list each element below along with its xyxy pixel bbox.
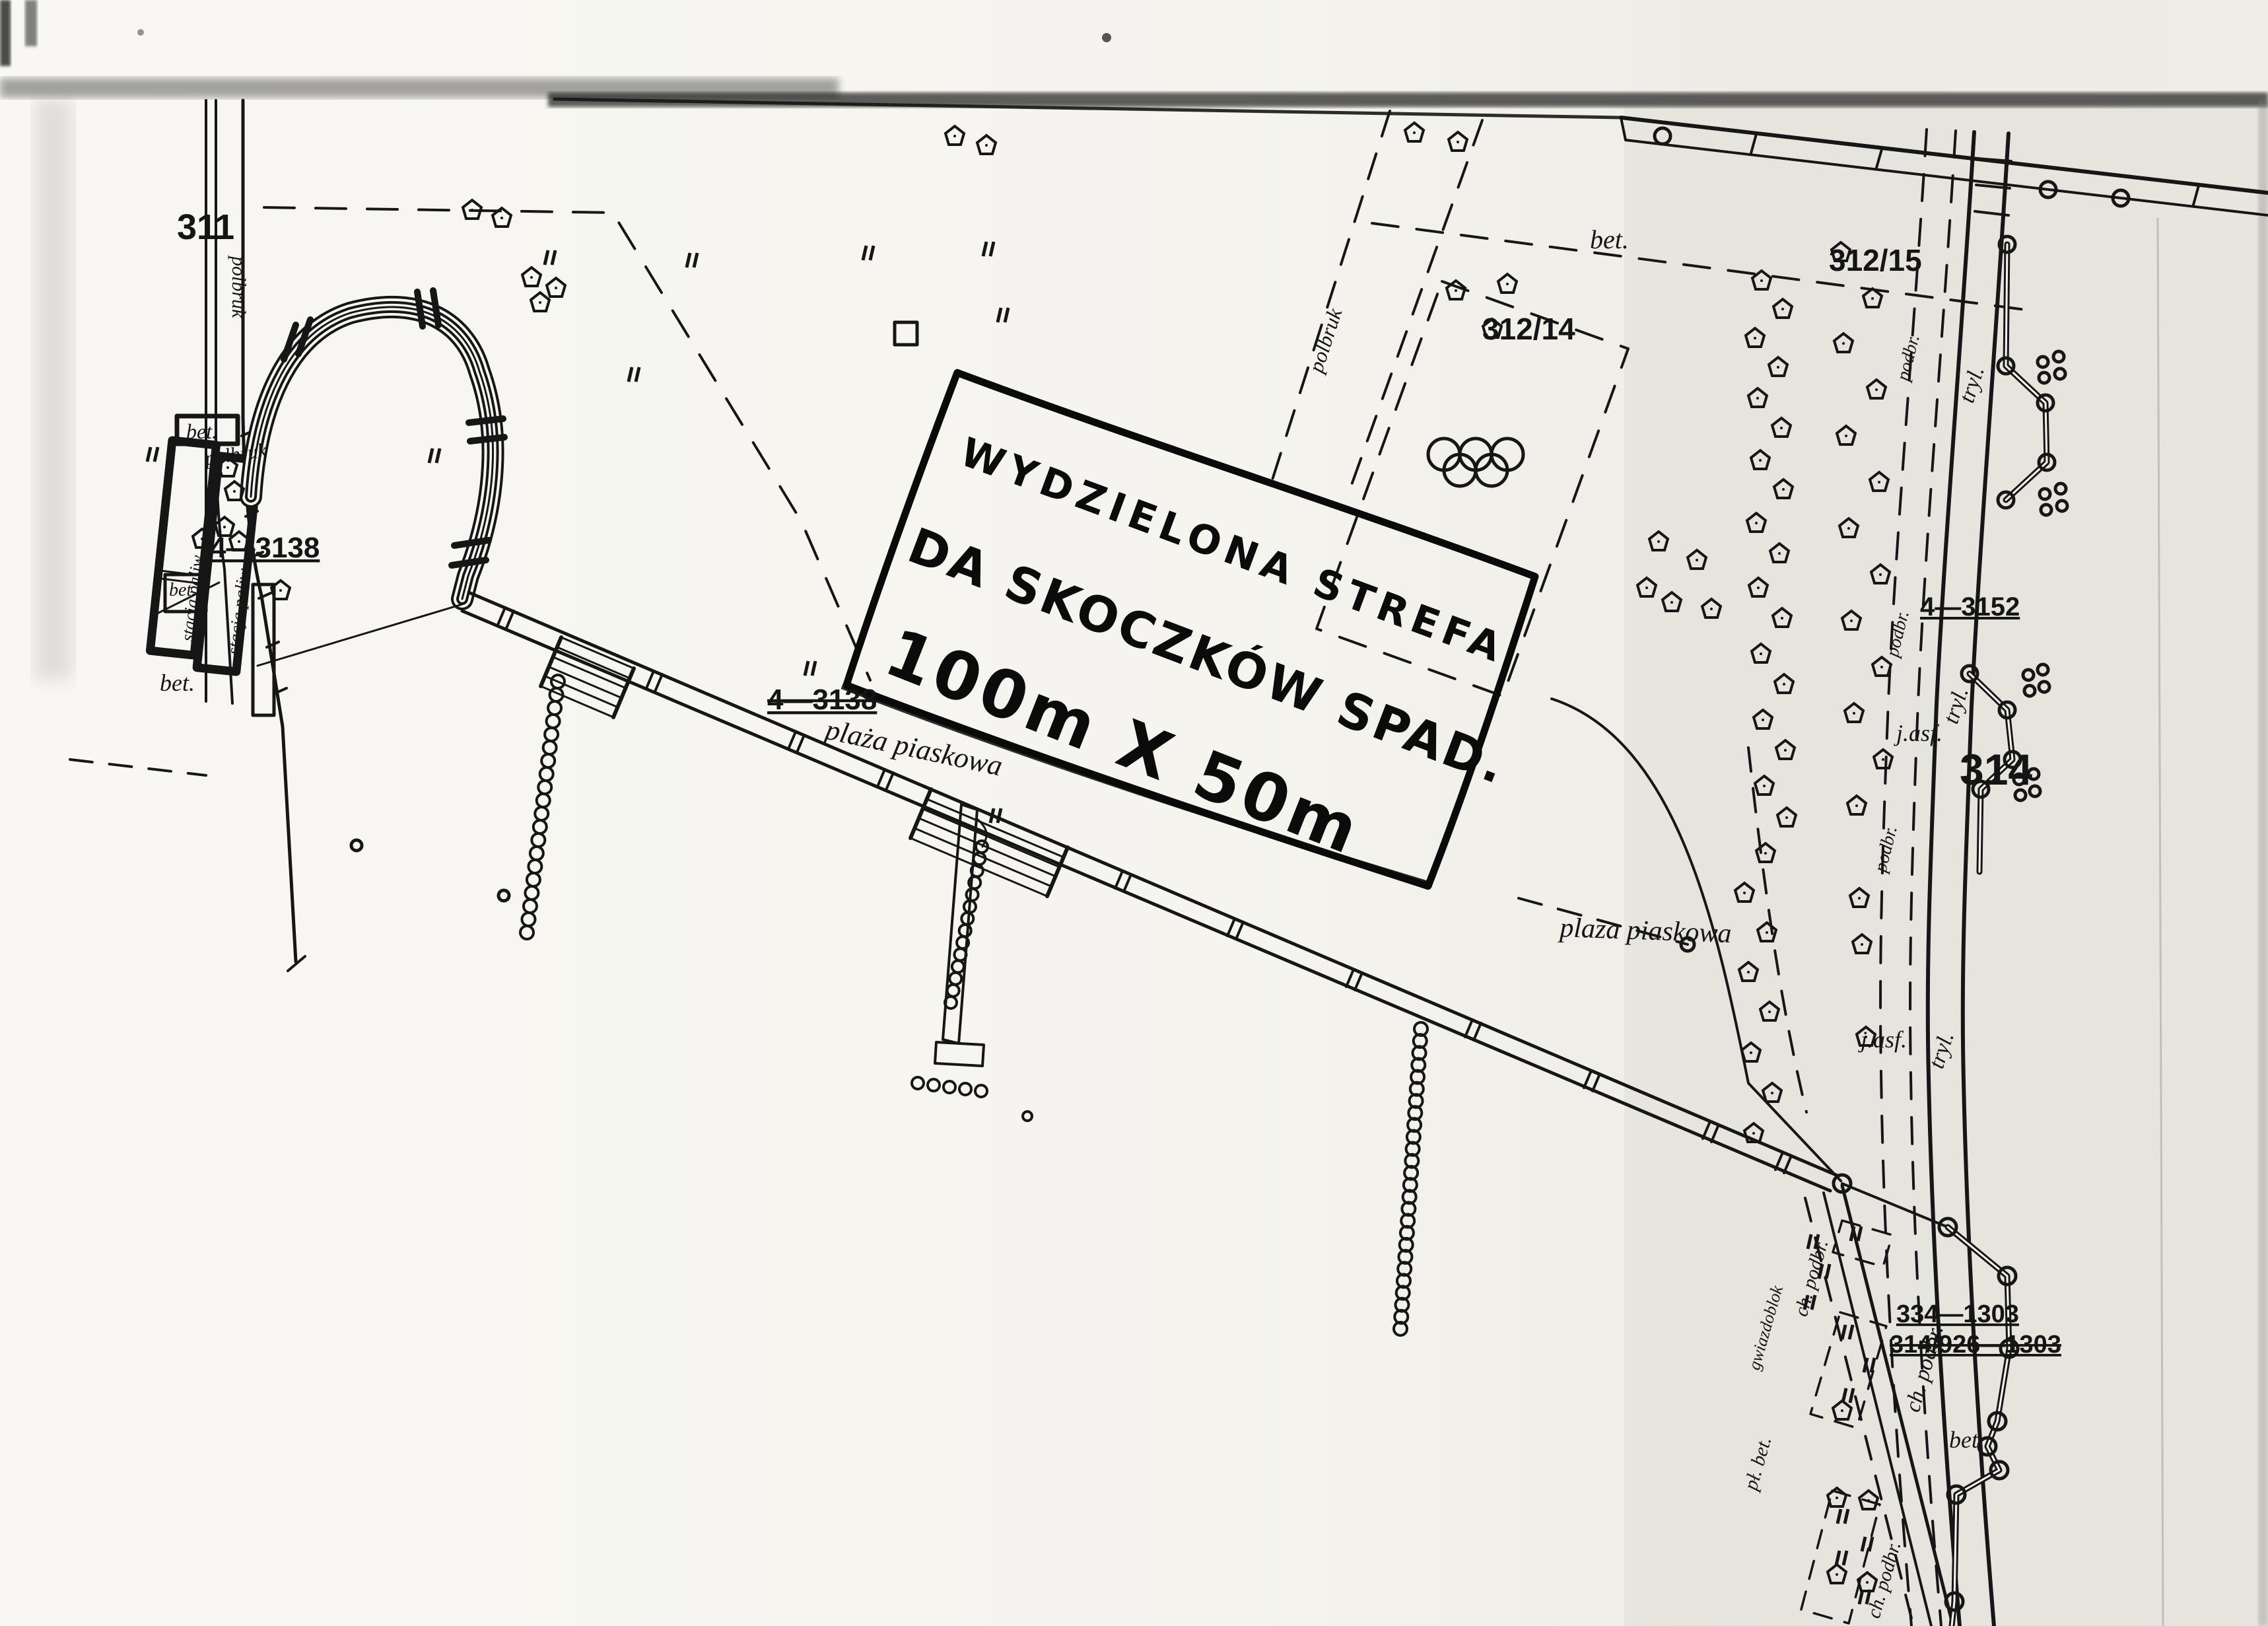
map-canvas: WYDZIELONA STREFA DA SKOCZKÓW SPAD. 100m… — [0, 0, 2268, 1626]
map-label-polbruk: polbruk — [228, 255, 250, 318]
corner-mark — [25, 0, 37, 46]
map-label-311: 311 — [177, 207, 234, 247]
map-label-4-3152: 4—3152 — [1920, 592, 2020, 621]
map-label-4-3138: 4—3138 — [210, 532, 320, 564]
map-label-bet.: bet. — [160, 670, 195, 696]
ink-speck — [137, 29, 144, 36]
map-label-j.asf.: j.asf. — [1858, 1026, 1907, 1053]
map-label-bet.: bet. — [186, 419, 217, 443]
map-label-4-3138: 4—3138 — [767, 684, 877, 716]
scan-shading-right — [1624, 106, 2268, 1626]
ink-speck — [1102, 33, 1111, 42]
page-edge-shadow — [2258, 99, 2268, 1626]
map-label-312/15: 312/15 — [1829, 243, 1922, 277]
map-label-314: 314 — [1960, 745, 2032, 794]
map-label-plaża-piaskowa: plaża piaskowa — [1558, 913, 1733, 949]
corner-mark — [0, 0, 11, 66]
scan-left-smudge — [34, 99, 73, 680]
map-label-334-1303: 334—1303 — [1896, 1300, 2019, 1328]
map-label-312/14: 312/14 — [1482, 312, 1575, 346]
map-label-bet.: bet. — [1949, 1427, 1984, 1453]
map-label-bet.: bet. — [1590, 225, 1629, 254]
scanned-site-plan-page: WYDZIELONA STREFA DA SKOCZKÓW SPAD. 100m… — [0, 0, 2268, 1626]
map-label-j.asf.: j.asf. — [1894, 720, 1942, 746]
